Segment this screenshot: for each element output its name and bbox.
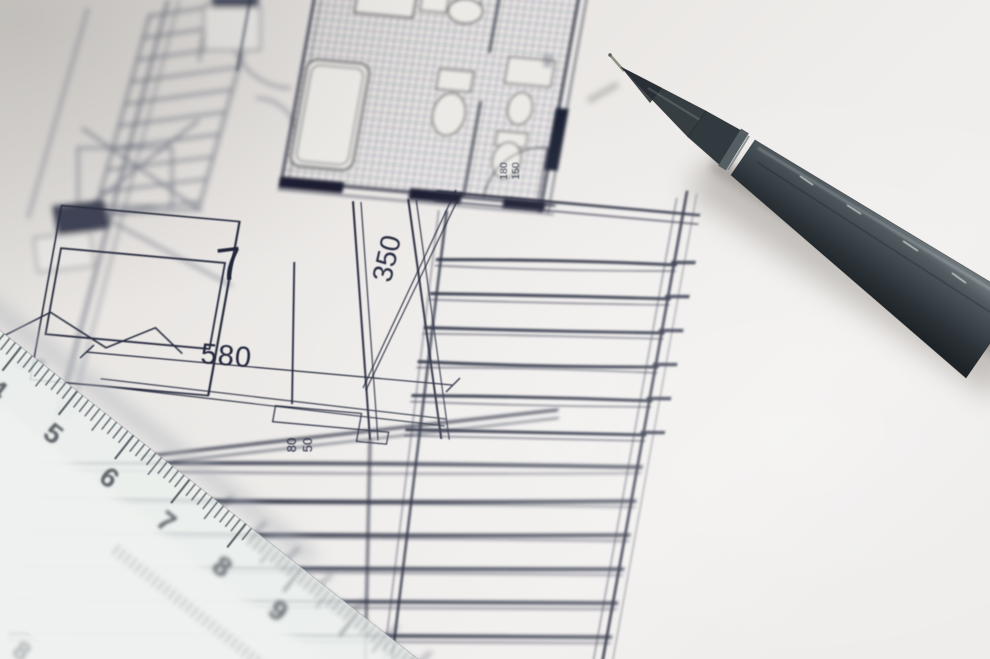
pen-needle-ball (608, 53, 611, 56)
blueprint-photo: 580 350 80 50 180 150 7 80 (0, 0, 990, 659)
photo-canvas: 580 350 80 50 180 150 7 80 (0, 0, 990, 659)
